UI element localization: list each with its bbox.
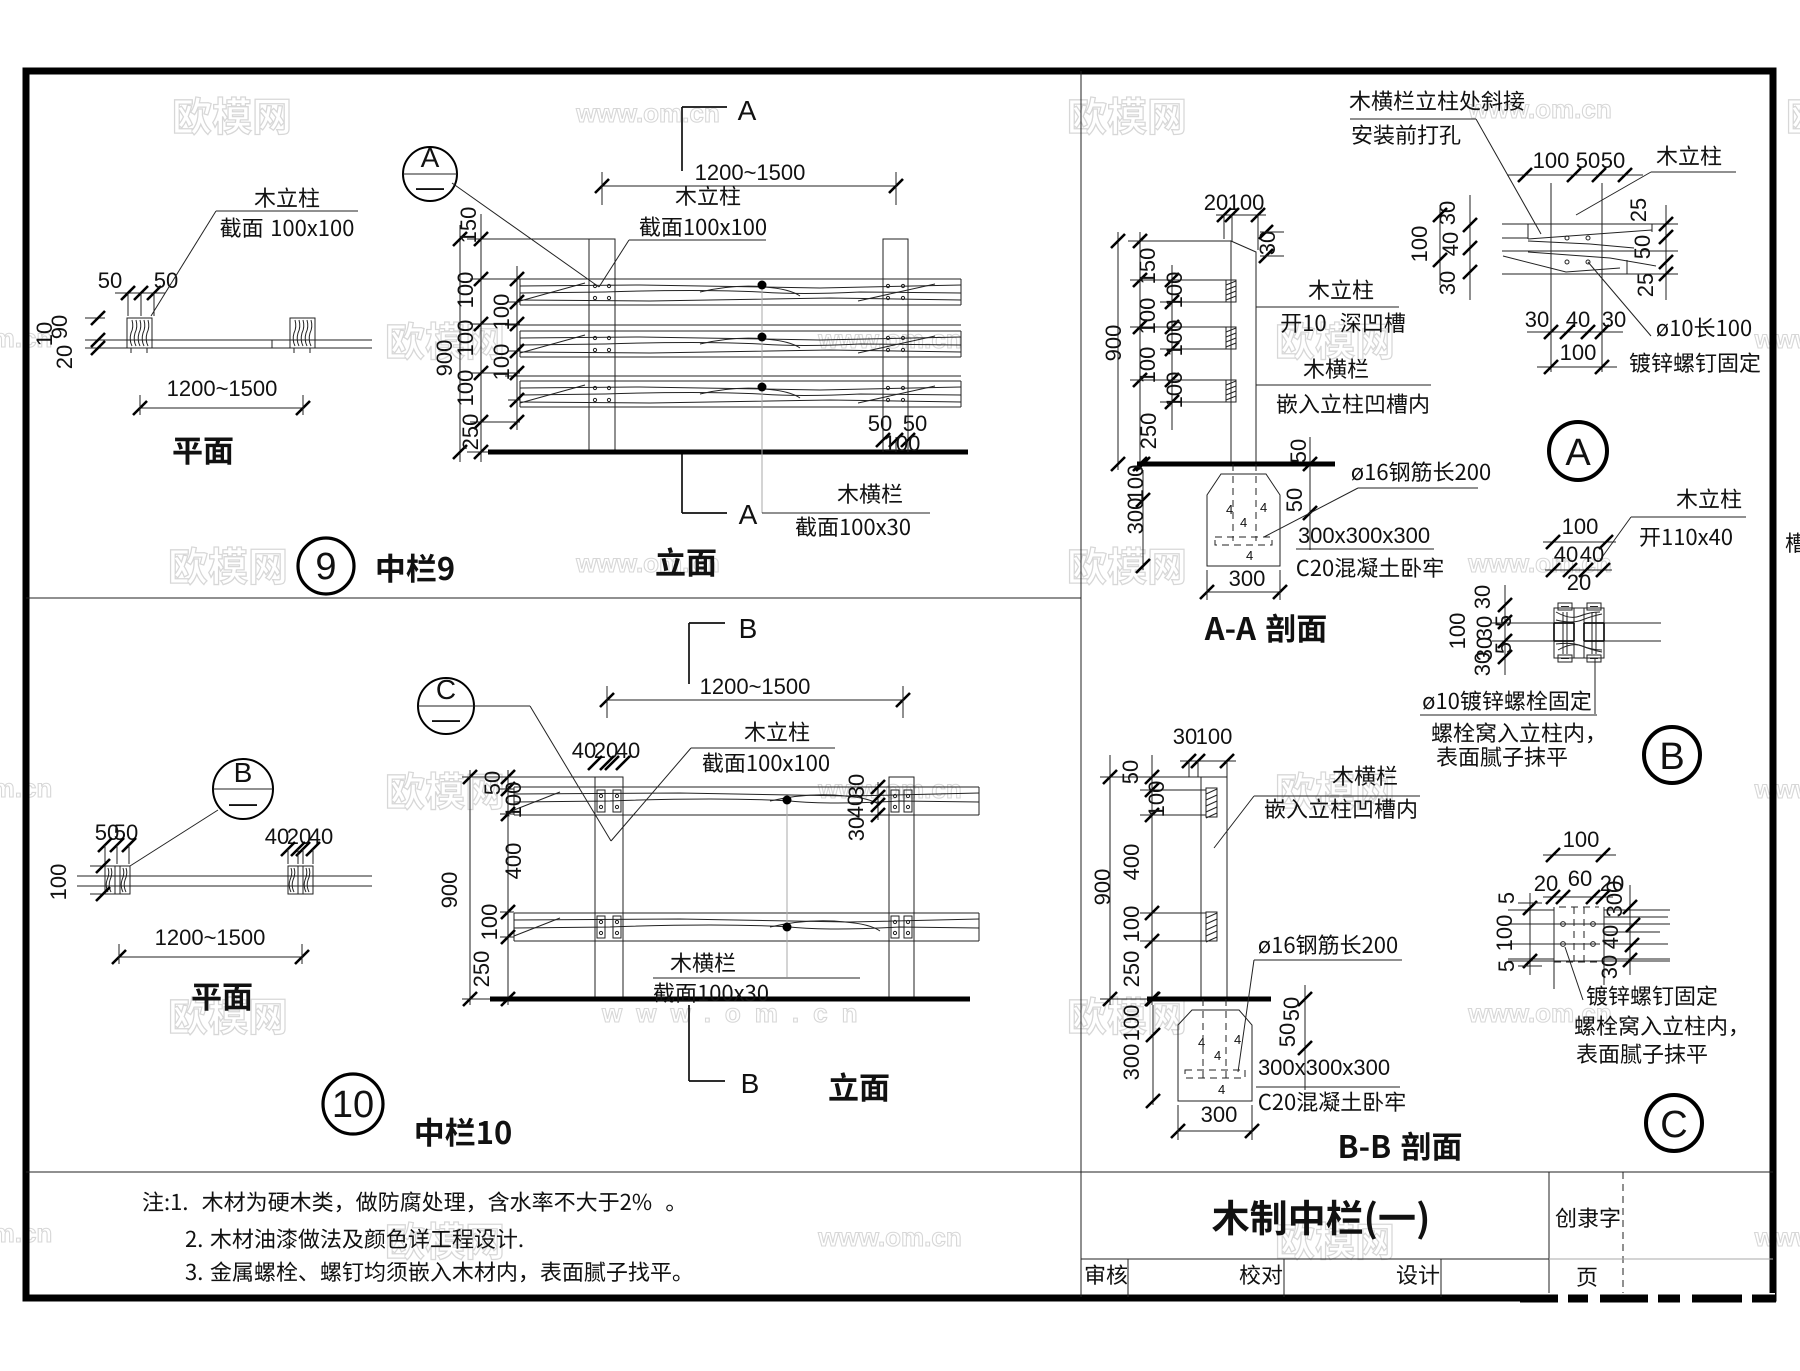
svg-text:250: 250 xyxy=(458,414,483,451)
svg-text:100: 100 xyxy=(1562,514,1599,539)
svg-text:9: 9 xyxy=(315,546,336,588)
svg-text:4: 4 xyxy=(1218,1082,1225,1097)
svg-text:5: 5 xyxy=(1494,892,1519,904)
svg-text:—: — xyxy=(432,703,460,734)
svg-text:30: 30 xyxy=(1470,652,1495,676)
svg-text:300: 300 xyxy=(1602,881,1627,918)
svg-text:C: C xyxy=(436,674,456,705)
svg-text:A: A xyxy=(1565,432,1591,474)
svg-text:C: C xyxy=(1660,1104,1687,1146)
svg-text:50: 50 xyxy=(1282,488,1307,512)
svg-text:10: 10 xyxy=(332,1084,374,1126)
svg-text:5: 5 xyxy=(1491,615,1516,627)
svg-text:250: 250 xyxy=(469,951,494,988)
svg-text:30: 30 xyxy=(1435,271,1460,295)
svg-text:30: 30 xyxy=(1435,201,1460,225)
svg-text:4: 4 xyxy=(1198,1035,1205,1050)
svg-text:B: B xyxy=(741,1068,760,1099)
svg-text:900: 900 xyxy=(432,340,457,377)
svg-text:400: 400 xyxy=(501,843,526,880)
svg-text:100: 100 xyxy=(1560,340,1597,365)
svg-text:—: — xyxy=(229,787,257,818)
svg-text:A: A xyxy=(739,499,758,530)
svg-text:40: 40 xyxy=(265,824,289,849)
svg-text:100: 100 xyxy=(1492,915,1517,952)
svg-text:50: 50 xyxy=(1630,235,1655,259)
svg-text:30: 30 xyxy=(1255,231,1280,255)
svg-text:100: 100 xyxy=(1162,320,1187,357)
svg-text:B: B xyxy=(739,613,758,644)
svg-text:100: 100 xyxy=(489,294,514,331)
svg-text:B: B xyxy=(1659,736,1684,778)
svg-text:B: B xyxy=(234,757,253,788)
svg-text:30: 30 xyxy=(1525,307,1549,332)
svg-text:100: 100 xyxy=(501,782,526,819)
svg-text:20: 20 xyxy=(52,345,77,369)
svg-text:www: www xyxy=(1754,774,1800,804)
svg-text:150: 150 xyxy=(456,207,481,244)
svg-text:100: 100 xyxy=(1119,906,1144,943)
svg-text:20: 20 xyxy=(1567,570,1591,595)
svg-text:30: 30 xyxy=(1173,724,1197,749)
svg-text:50: 50 xyxy=(154,268,178,293)
svg-text:4: 4 xyxy=(1240,515,1247,530)
svg-text:400: 400 xyxy=(1119,844,1144,881)
svg-text:20: 20 xyxy=(1204,190,1228,215)
svg-text:30: 30 xyxy=(1597,955,1622,979)
svg-text:100: 100 xyxy=(1135,347,1160,384)
svg-text:4: 4 xyxy=(1246,548,1253,563)
svg-text:300: 300 xyxy=(1119,1044,1144,1081)
svg-text:50: 50 xyxy=(98,268,122,293)
svg-text:5: 5 xyxy=(1494,960,1519,972)
svg-text:1200~1500: 1200~1500 xyxy=(167,376,278,401)
svg-text:50: 50 xyxy=(1118,760,1143,784)
svg-text:A: A xyxy=(421,142,440,173)
svg-text:60: 60 xyxy=(1568,866,1592,891)
svg-text:40: 40 xyxy=(309,824,333,849)
svg-text:100: 100 xyxy=(1123,465,1148,502)
svg-text:250: 250 xyxy=(1136,413,1161,450)
svg-text:4: 4 xyxy=(1260,500,1267,515)
svg-text:A: A xyxy=(738,95,757,126)
svg-text:50: 50 xyxy=(1275,1023,1300,1047)
svg-text:300: 300 xyxy=(1123,498,1148,535)
svg-text:250: 250 xyxy=(1119,951,1144,988)
svg-text:—: — xyxy=(416,171,444,202)
svg-text:100: 100 xyxy=(1533,148,1570,173)
svg-text:100: 100 xyxy=(1135,298,1160,335)
svg-text:40: 40 xyxy=(1598,925,1623,949)
svg-text:www: www xyxy=(1754,324,1800,354)
svg-text:30: 30 xyxy=(1470,585,1495,609)
svg-text:100: 100 xyxy=(884,431,921,456)
svg-text:30: 30 xyxy=(844,817,869,841)
svg-text:100: 100 xyxy=(46,864,71,901)
svg-text:100: 100 xyxy=(1445,613,1470,650)
svg-text:25: 25 xyxy=(1633,273,1658,297)
svg-text:www: www xyxy=(1754,1222,1800,1252)
svg-text:20: 20 xyxy=(1534,871,1558,896)
svg-text:300: 300 xyxy=(1229,566,1266,591)
svg-text:www.om.cn: www.om.cn xyxy=(575,98,720,128)
svg-text:www.om.cn: www.om.cn xyxy=(601,998,872,1028)
svg-text:100: 100 xyxy=(1119,1005,1144,1042)
svg-text:www.om.cn: www.om.cn xyxy=(817,1222,962,1252)
svg-text:100: 100 xyxy=(1162,272,1187,309)
svg-text:40: 40 xyxy=(572,738,596,763)
svg-text:100: 100 xyxy=(1144,781,1169,818)
svg-text:100: 100 xyxy=(1196,724,1233,749)
svg-text:150: 150 xyxy=(1135,248,1160,285)
svg-text:100: 100 xyxy=(1563,827,1600,852)
svg-text:www.om.cn: www.om.cn xyxy=(1467,94,1612,124)
svg-text:900: 900 xyxy=(1101,325,1126,362)
svg-text:50: 50 xyxy=(1279,997,1304,1021)
svg-text:100: 100 xyxy=(1162,372,1187,409)
svg-text:25: 25 xyxy=(1626,198,1651,222)
svg-text:900: 900 xyxy=(437,872,462,909)
svg-text:100: 100 xyxy=(489,344,514,381)
svg-text:900: 900 xyxy=(1090,869,1115,906)
svg-text:1200~1500: 1200~1500 xyxy=(695,160,806,185)
svg-text:1200~1500: 1200~1500 xyxy=(155,925,266,950)
svg-text:4: 4 xyxy=(1214,1048,1221,1063)
svg-text:100: 100 xyxy=(1228,190,1265,215)
svg-text:300x300x300: 300x300x300 xyxy=(1298,523,1430,548)
svg-text:300x300x300: 300x300x300 xyxy=(1258,1055,1390,1080)
svg-text:40: 40 xyxy=(843,794,868,818)
svg-text:40: 40 xyxy=(1554,542,1578,567)
svg-text:50: 50 xyxy=(1286,439,1311,463)
svg-text:100: 100 xyxy=(453,272,478,309)
svg-text:90: 90 xyxy=(47,315,72,339)
svg-text:100: 100 xyxy=(1407,226,1432,263)
svg-text:40: 40 xyxy=(1438,232,1463,256)
svg-text:100: 100 xyxy=(477,904,502,941)
svg-text:1200~1500: 1200~1500 xyxy=(700,674,811,699)
svg-text:300: 300 xyxy=(1201,1102,1238,1127)
svg-text:4: 4 xyxy=(1234,1032,1241,1047)
svg-text:4: 4 xyxy=(1226,502,1233,517)
